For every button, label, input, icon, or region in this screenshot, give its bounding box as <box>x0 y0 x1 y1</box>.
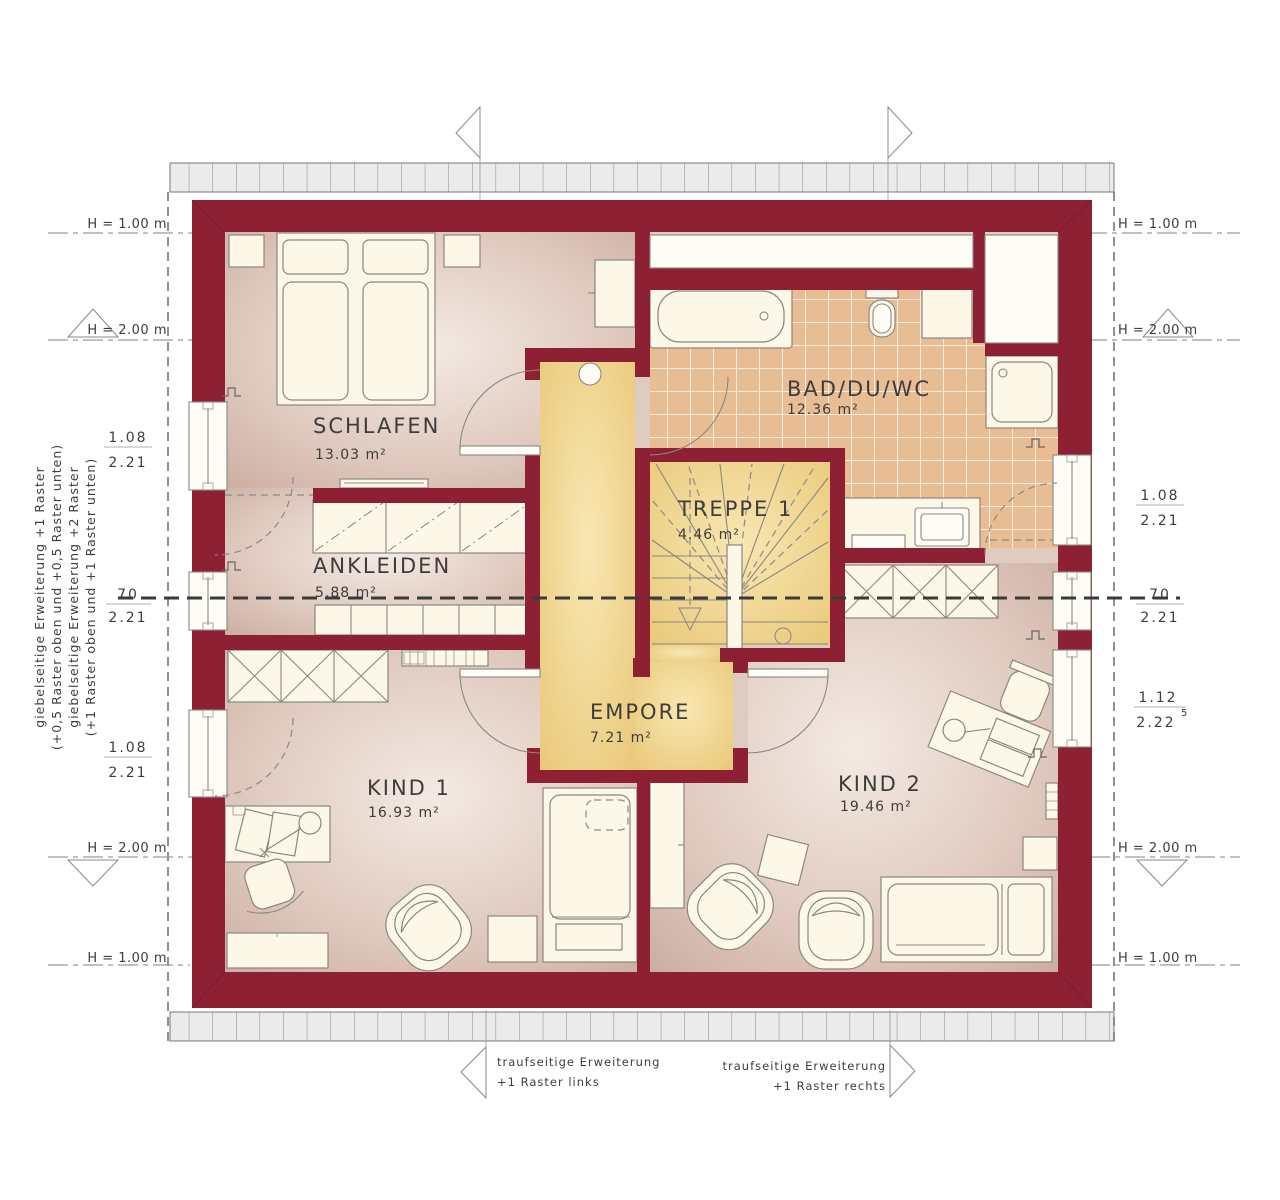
toilet <box>866 285 898 337</box>
dim-left-mid: 70 2.21 <box>106 587 151 626</box>
kind2-bed <box>881 877 1052 962</box>
shower <box>986 356 1058 428</box>
nightstand-left <box>229 235 264 267</box>
floorplan-page: SCHLAFEN 13.03 m² ANKLEIDEN 5.88 m² BAD/… <box>0 0 1280 1200</box>
svg-text:2.21: 2.21 <box>108 765 147 781</box>
label-ankleiden: ANKLEIDEN <box>313 554 451 578</box>
h100-top-right: H = 1.00 m <box>1118 217 1198 232</box>
label-treppe: TREPPE 1 <box>677 497 793 521</box>
svg-text:1.08: 1.08 <box>108 430 147 446</box>
area-empore: 7.21 m² <box>590 730 652 746</box>
area-schlafen: 13.03 m² <box>315 447 387 463</box>
kind2-radiator <box>1046 783 1058 819</box>
top-hatched-strip <box>170 163 1114 192</box>
svg-text:2.21: 2.21 <box>108 455 147 471</box>
bottom-hatched-strip <box>170 1012 1114 1041</box>
bottom-note-left-line2: +1 Raster links <box>497 1075 600 1089</box>
area-treppe: 4.46 m² <box>678 527 740 543</box>
treppe-opening-floor <box>650 645 720 662</box>
ankleiden-wardrobe-top <box>313 500 533 553</box>
svg-text:2.21: 2.21 <box>108 610 147 626</box>
bottom-note-right-line1: traufseitige Erweiterung <box>723 1059 886 1073</box>
window-right-2 <box>1053 572 1091 630</box>
svg-text:70: 70 <box>1149 587 1171 603</box>
side-note-line4: (+1 Raster oben und +1 Raster unten) <box>83 458 98 736</box>
label-schlafen: SCHLAFEN <box>313 414 440 438</box>
h200-bottom-left: H = 2.00 m <box>87 841 167 856</box>
dim-left-bottom: 1.08 2.21 <box>104 740 152 781</box>
label-bad: BAD/DU/WC <box>787 377 931 401</box>
svg-text:2.22: 2.22 <box>1136 715 1175 731</box>
side-note-line1: giebelseitige Erweiterung +1 Raster <box>32 466 47 727</box>
side-note-line3: giebelseitige Erweiterung +2 Raster <box>66 466 81 727</box>
eaves-extension-notes: traufseitige Erweiterung +1 Raster links… <box>497 1055 886 1093</box>
dim-right-mid: 70 2.21 <box>1136 587 1184 626</box>
wall-shelf <box>340 479 428 488</box>
h200-top-right: H = 2.00 m <box>1118 323 1198 338</box>
window-left-3 <box>189 710 227 797</box>
bottom-right-marker-triangle <box>890 1045 915 1097</box>
dim-right-bottom-superscript: 5 <box>1181 708 1187 719</box>
vanity-washbasin <box>843 498 980 553</box>
window-left-2 <box>189 572 227 630</box>
svg-text:1.12: 1.12 <box>1138 690 1177 706</box>
knee-storage-left <box>650 235 973 268</box>
kind2-shelf <box>650 782 684 908</box>
top-right-marker-triangle <box>888 107 912 158</box>
h100-top-left: H = 1.00 m <box>87 217 167 232</box>
svg-text:1.08: 1.08 <box>108 740 147 756</box>
right-lower-height-triangle <box>1137 860 1187 886</box>
kind1-side-table <box>488 916 537 962</box>
ankleiden-shelf-bottom <box>315 605 533 635</box>
area-bad: 12.36 m² <box>787 402 859 418</box>
outer-wall-top <box>192 200 1092 232</box>
left-lower-height-triangle <box>68 860 118 886</box>
svg-text:1.08: 1.08 <box>1140 488 1179 504</box>
h200-top-left: H = 2.00 m <box>87 323 167 338</box>
empore-circle-fixture <box>579 363 601 385</box>
area-kind1: 16.93 m² <box>368 805 440 821</box>
dim-left-top: 1.08 2.21 <box>104 430 152 471</box>
window-right-1 <box>1053 455 1091 545</box>
bath-cabinet <box>922 287 972 338</box>
side-note-line2: (+0,5 Raster oben und +0,5 Raster unten) <box>49 444 64 750</box>
svg-text:2.21: 2.21 <box>1140 610 1179 626</box>
bottom-note-right-line2: +1 Raster rechts <box>773 1079 886 1093</box>
h100-bottom-left: H = 1.00 m <box>87 951 167 966</box>
schlafen-wardrobe <box>588 260 635 327</box>
kind1-sideboard <box>227 933 328 968</box>
kind1-bed <box>543 788 637 962</box>
bottom-note-left-line1: traufseitige Erweiterung <box>497 1055 660 1069</box>
window-right-3 <box>1053 650 1091 747</box>
h100-bottom-right: H = 1.00 m <box>1118 951 1198 966</box>
label-kind2: KIND 2 <box>838 772 922 796</box>
top-left-marker-triangle <box>456 107 480 158</box>
bathtub <box>650 285 792 348</box>
gable-extension-note: giebelseitige Erweiterung +1 Raster (+0,… <box>32 444 98 750</box>
area-kind2: 19.46 m² <box>840 799 912 815</box>
kind2-wardrobe <box>840 565 998 618</box>
label-kind1: KIND 1 <box>367 776 451 800</box>
outer-wall-bottom <box>192 972 1092 1008</box>
kind2-armchair-right <box>799 891 873 969</box>
kind2-nightstand <box>1023 837 1057 870</box>
window-left-1 <box>189 402 227 490</box>
kind1-wardrobe <box>228 650 388 702</box>
bottom-left-marker-triangle <box>461 1047 486 1098</box>
dim-right-top: 1.08 2.21 <box>1136 488 1184 529</box>
area-ankleiden: 5.88 m² <box>315 585 377 601</box>
svg-text:2.21: 2.21 <box>1140 513 1179 529</box>
floorplan-drawing: SCHLAFEN 13.03 m² ANKLEIDEN 5.88 m² BAD/… <box>0 0 1280 1200</box>
label-empore: EMPORE <box>590 700 690 724</box>
nightstand-right <box>444 235 480 267</box>
svg-text:70: 70 <box>117 587 139 603</box>
knee-storage-right <box>985 235 1058 343</box>
double-bed <box>277 233 435 405</box>
h200-bottom-right: H = 2.00 m <box>1118 841 1198 856</box>
book-shelf <box>402 650 488 666</box>
dim-right-bottom: 1.12 2.22 5 <box>1134 690 1187 731</box>
kind1-desk <box>225 806 330 862</box>
